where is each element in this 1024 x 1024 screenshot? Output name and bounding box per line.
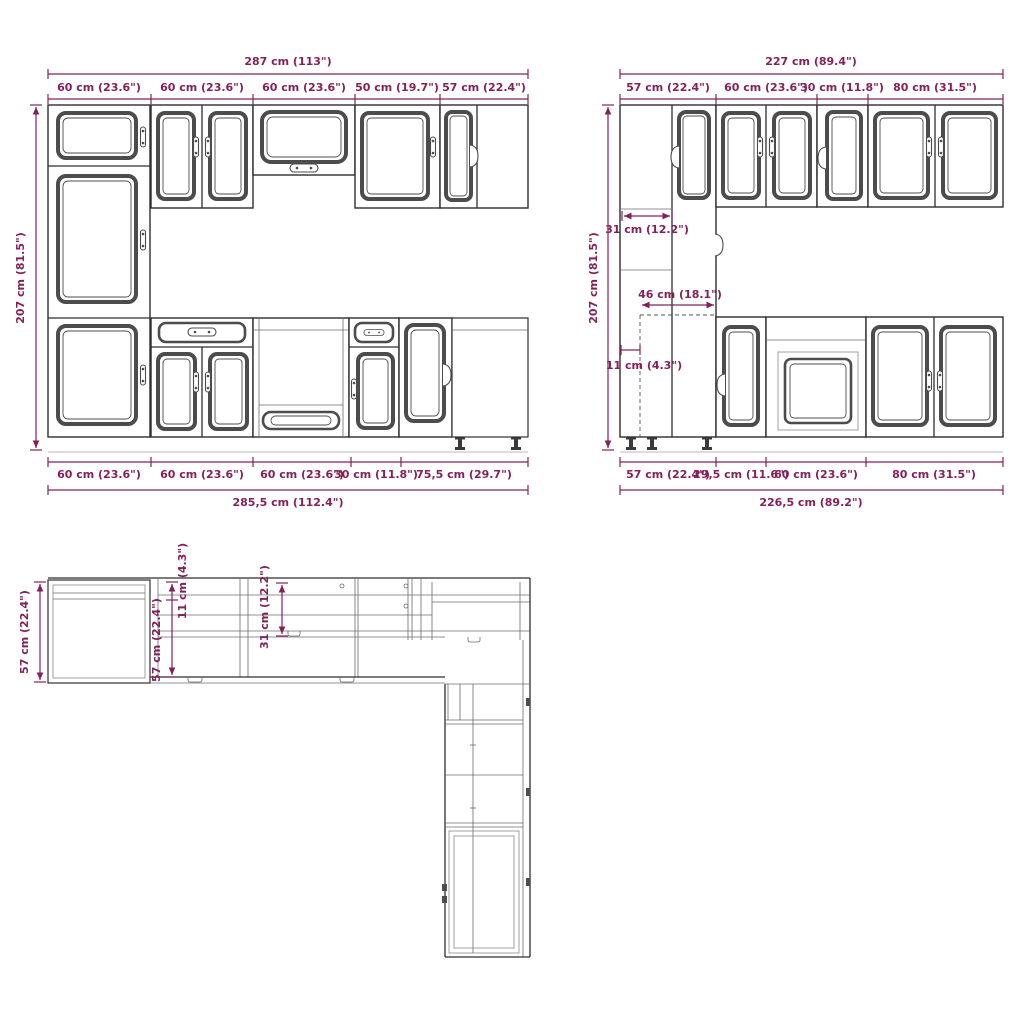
kitchen-cabinet-technical-drawing: 287 cm (113") 60 cm (23.6") 60 cm (23.6"…: [0, 0, 1024, 1024]
tall-cabinet-front: [48, 105, 150, 437]
base-cabinet-60-front: [151, 318, 253, 437]
dim-front-top-seg-5: 57 cm (22.4"): [442, 81, 526, 94]
dim-front-bottom-seg-4: 30 cm (11.8"): [334, 468, 418, 481]
handle-icon: [141, 127, 146, 147]
handle-icon: [206, 137, 211, 157]
handle-icon: [431, 137, 436, 157]
corner-base-cabinet-front: [399, 318, 452, 437]
bridge-cabinet-front: [253, 105, 355, 175]
wall-cabinet-80-side: [868, 105, 1003, 207]
handle-icon: [206, 372, 211, 392]
drawer-unit-side: [716, 317, 766, 437]
handle-icon: [194, 137, 199, 157]
handle-icon: [194, 372, 199, 392]
dim-front-bottom-seg-2: 60 cm (23.6"): [160, 468, 244, 481]
dim-side-upper-depth: 31 cm (12.2"): [605, 223, 689, 236]
dim-front-total-width-bottom: 285,5 cm (112.4"): [232, 496, 343, 509]
dim-side-bottom-seg-3: 60 cm (23.6"): [774, 468, 858, 481]
dim-front-total-width: 287 cm (113"): [244, 55, 331, 68]
dim-front-top-seg-3: 60 cm (23.6"): [262, 81, 346, 94]
handle-icon: [938, 371, 943, 391]
handle-icon: [364, 330, 384, 336]
dim-side-top-seg-4: 80 cm (31.5"): [893, 81, 977, 94]
dim-side-top-seg-3: 30 cm (11.8"): [800, 81, 884, 94]
dim-front-top-seg-1: 60 cm (23.6"): [57, 81, 141, 94]
handle-icon: [141, 365, 146, 385]
dim-side-total-width: 227 cm (89.4"): [765, 55, 857, 68]
base-cabinet-80-side: [866, 317, 1003, 437]
dim-plan-wall-depth: 31 cm (12.2"): [258, 565, 271, 649]
base-cabinet-30-front: [349, 318, 399, 437]
dim-front-height: 207 cm (81.5"): [14, 232, 27, 324]
handle-icon: [352, 379, 357, 399]
handle-icon: [141, 230, 146, 250]
dim-plan-depth-total: 57 cm (22.4"): [18, 590, 31, 674]
tall-cabinet-plan: [48, 580, 150, 683]
oven-cabinet-side: [766, 317, 866, 437]
dim-front-top-seg-2: 60 cm (23.6"): [160, 81, 244, 94]
dim-front-bottom-seg-5: 75,5 cm (29.7"): [416, 468, 512, 481]
drawing-canvas: 287 cm (113") 60 cm (23.6") 60 cm (23.6"…: [0, 0, 1024, 1024]
oven-housing-front: [253, 318, 349, 437]
dim-side-top-seg-1: 57 cm (22.4"): [626, 81, 710, 94]
open-corner-frame-front: [452, 318, 528, 450]
dim-side-plinth-offset: 11 cm (4.3"): [606, 359, 682, 372]
wall-cabinet-60-front: [151, 105, 253, 208]
wall-cabinet-30-side: [817, 105, 868, 207]
dim-side-height: 207 cm (81.5"): [587, 232, 600, 324]
dim-plan-offset: 11 cm (4.3"): [176, 543, 189, 619]
handle-icon: [188, 328, 216, 336]
dim-side-total-width-bottom: 226,5 cm (89.2"): [759, 496, 862, 509]
dim-front-bottom-seg-1: 60 cm (23.6"): [57, 468, 141, 481]
handle-icon: [927, 137, 932, 157]
handle-icon: [770, 137, 775, 157]
handle-icon: [758, 137, 763, 157]
dim-side-top-seg-2: 60 cm (23.6"): [724, 81, 808, 94]
dim-side-bottom-seg-4: 80 cm (31.5"): [892, 468, 976, 481]
corner-wall-cabinet-front: [440, 105, 528, 208]
dim-side-counter-depth: 46 cm (18.1"): [638, 288, 722, 301]
tall-cabinet-side: [620, 105, 723, 450]
handle-icon: [290, 164, 318, 172]
wall-cabinet-50-front: [355, 105, 440, 208]
dim-front-bottom-seg-3: 60 cm (23.6"): [260, 468, 344, 481]
handle-icon: [927, 371, 932, 391]
handle-icon: [939, 137, 944, 157]
dim-front-top-seg-4: 50 cm (19.7"): [355, 81, 439, 94]
wall-cabinet-60-side: [716, 105, 817, 207]
dim-plan-depth-inner: 57 cm (22.4"): [150, 598, 163, 682]
